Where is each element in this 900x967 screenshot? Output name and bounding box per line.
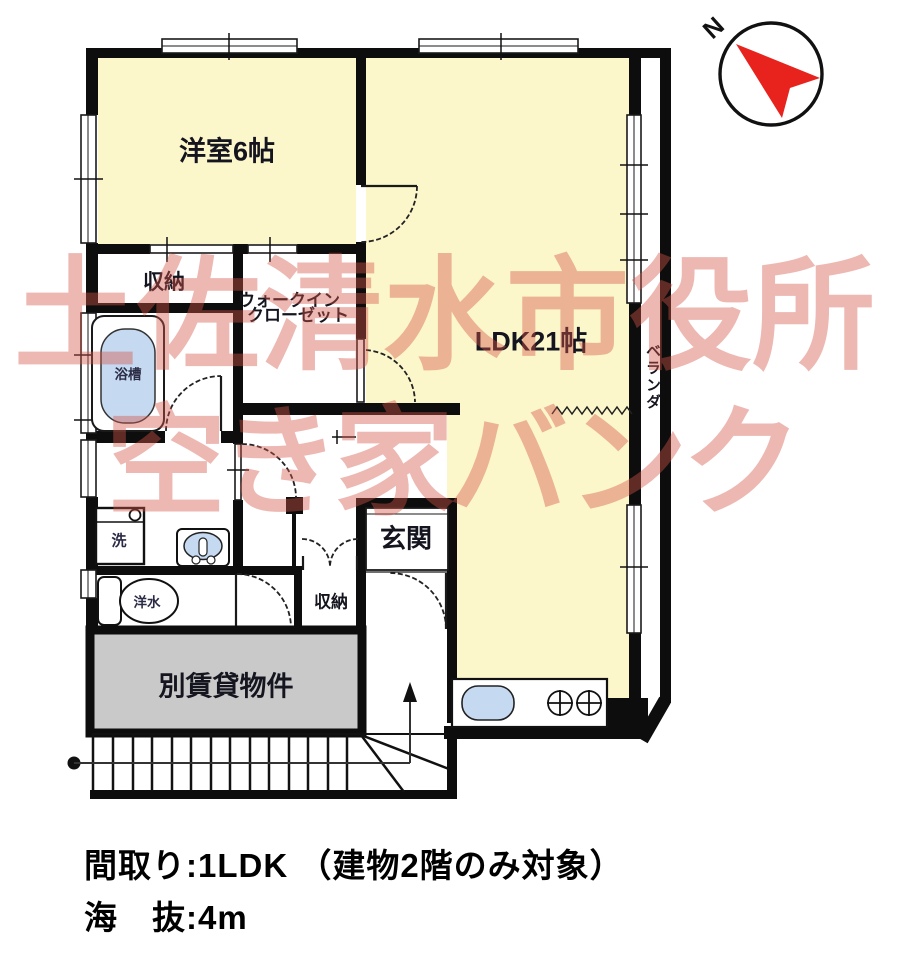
caption-elevation: 海 抜:4m (84, 892, 624, 944)
kitchen-counter (452, 679, 607, 727)
compass (720, 23, 822, 125)
caption-layout: 間取り:1LDK （建物2階のみ対象） (84, 840, 624, 892)
kitchen-sink (462, 686, 514, 720)
label-walkin-closet-line2: クローゼット (247, 308, 368, 323)
label-veranda: ベランダ (642, 343, 663, 411)
caption: 間取り:1LDK （建物2階のみ対象） 海 抜:4m (84, 840, 624, 944)
label-western-room: 洋室6帖 (179, 130, 275, 169)
washbasin (177, 529, 229, 566)
north-needle-icon (736, 44, 820, 118)
label-walkin-closet: ウォークイン クローゼット (238, 293, 368, 323)
label-bathtub: 浴槽 (115, 363, 142, 383)
label-toilet: 洋水 (134, 591, 161, 611)
label-ldk: LDK21帖 (475, 320, 588, 359)
label-closet-hall: 収納 (314, 588, 348, 613)
label-genkan: 玄関 (380, 519, 432, 556)
floorplan-page: 洋室6帖 LDK21帖 収納 ウォークイン クローゼット 浴槽 洗 洋水 収納 … (0, 0, 900, 967)
label-washer: 洗 (111, 530, 126, 551)
floorplan-drawing (0, 0, 900, 967)
label-closet-top: 収納 (143, 266, 185, 296)
label-rental-unit: 別賃貸物件 (159, 665, 294, 704)
